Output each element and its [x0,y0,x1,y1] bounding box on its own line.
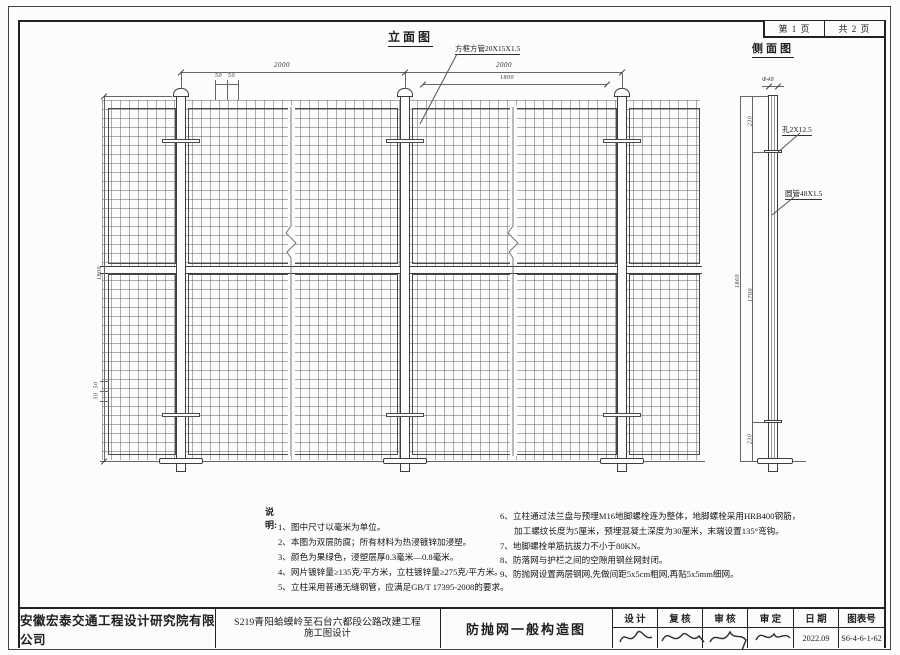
dim-span1: 2000 [274,61,290,69]
dimension-line [752,96,753,462]
break-line [288,106,295,456]
elevation-view-title: 立面图 [388,28,433,47]
tick [100,401,109,402]
dim-left-small-b: 50 [94,393,100,400]
page-total: 共 2 页 [824,21,884,36]
note-item: 7、地脚螺栓单筋抗拔力不小于80KN。 [500,540,646,552]
anchor-stem [176,463,186,472]
date-value: 2022.09 [793,628,838,648]
project-line2: 施工图设计 [304,629,351,641]
extension-line [752,152,765,153]
hole-callout-label: 孔2X12.5 [782,124,812,136]
dim-small-a: 50 [215,73,222,79]
dimension-line [762,86,784,87]
field-sheet-no: 图表号 [838,609,884,628]
dim-dia: Φ48 [762,77,774,83]
bolt-hole [764,150,782,153]
post-cap [614,88,630,97]
post-bracket [162,139,200,143]
tick [100,391,109,392]
note-item: 2、本图为双层防腐；所有材料为热浸镀锌加浸塑。 [278,536,471,548]
bolt-hole [764,420,782,423]
post-cap [173,88,189,97]
post-cap [397,88,413,97]
dim-inner: 1800 [500,75,514,81]
post-bracket [603,139,641,143]
anchor-stem [400,463,410,472]
panel-frame [629,274,700,455]
post [400,95,410,464]
title-block: 安徽宏泰交通工程设计研究院有限公司 S219青阳蛤蟆岭至石台六都段公路改建工程 … [20,607,884,648]
frame-callout-label: 方框方管20X15X1.5 [455,43,520,55]
note-item: 9、防抛网设置两层钢网,先做间距5x5cm粗网,再贴5x5mm细网。 [500,568,739,580]
note-item: 8、防落网与护栏之间的空隙用钢丝网封闭。 [500,554,668,566]
notes-title: 说明: [265,505,277,531]
dimension-line [423,84,607,85]
post [617,95,627,464]
dim-height: 1800 [97,266,103,280]
field-date: 日 期 [793,609,838,628]
signature-scribbles [612,626,794,650]
dim-total: 1860 [735,274,741,288]
side-view-title: 侧面图 [752,40,794,58]
note-item: 6、立柱通过法兰盘与预埋M16地脚螺栓连为整体，地脚螺栓采用HRB400钢筋， [500,510,800,522]
dim-span2: 2000 [496,61,512,69]
note-item: 加工螺纹长度为5厘米，预埋混凝土深度为30厘米，末端设置135°弯钩。 [514,525,784,537]
anchor-stem [768,463,778,472]
dim-top: 230 [747,116,753,127]
extension-line [104,96,172,97]
pipe-callout-label: 圆管48X1.5 [785,188,822,200]
post-bracket [386,413,424,417]
extension-line [752,422,765,423]
extension-line [740,96,768,97]
note-item: 1、图中尺寸以毫米为单位。 [278,521,385,533]
extension-line [181,73,182,89]
project-line1: S219青阳蛤蟆岭至石台六都段公路改建工程 [234,617,421,629]
post-bracket [386,139,424,143]
panel-frame [629,108,700,264]
panel-frame [108,108,176,264]
dim-bottom: 230 [747,434,753,445]
note-item: 5、立柱采用普通无缝钢管，应满足GB/T 17395-2008的要求。 [278,581,509,593]
panel-frame [108,274,176,455]
extension-line [215,80,216,100]
extension-line [622,73,623,89]
note-item: 4、网片镀锌量≥135克/平方米，立柱镀锌量≥275克/平方米。 [278,566,503,578]
drawing-title: 防抛网一般构造图 [440,609,612,648]
page-number: 第 1 页 [765,21,824,36]
post [176,95,186,464]
post-bracket [162,413,200,417]
dim-left-small-a: 50 [94,382,100,389]
note-item: 3、颜色为果绿色，浸塑层厚0.3毫米—0.8毫米。 [278,551,458,563]
page-number-box: 第 1 页 共 2 页 [763,20,886,38]
sheet-number-value: S6-4-6-1-62 [838,628,884,648]
tick [100,381,109,382]
extension-line [238,80,239,100]
extension-line [405,73,406,89]
post-bracket [603,413,641,417]
dim-small-b: 50 [228,73,235,79]
drawing-sheet: 第 1 页 共 2 页 立面图 侧面图 [0,0,900,655]
dimension-line [405,72,622,73]
break-line [510,106,517,456]
dim-mid: 1700 [748,288,754,302]
project-name: S219青阳蛤蟆岭至石台六都段公路改建工程 施工图设计 [215,609,440,648]
extension-line [227,80,228,100]
company-name: 安徽宏泰交通工程设计研究院有限公司 [20,609,215,648]
anchor-stem [617,463,627,472]
dimension-line [104,96,105,462]
